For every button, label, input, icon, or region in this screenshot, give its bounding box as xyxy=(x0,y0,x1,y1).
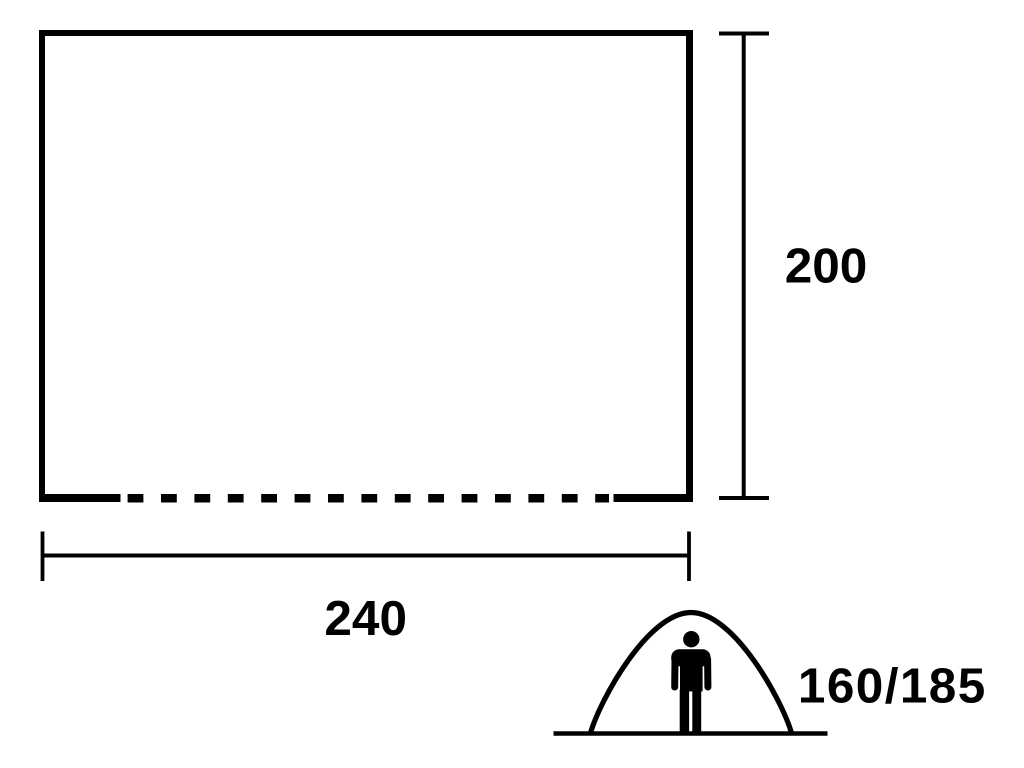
svg-text:240: 240 xyxy=(324,591,407,646)
svg-text:200: 200 xyxy=(785,238,868,293)
svg-text:160/185: 160/185 xyxy=(798,659,987,714)
